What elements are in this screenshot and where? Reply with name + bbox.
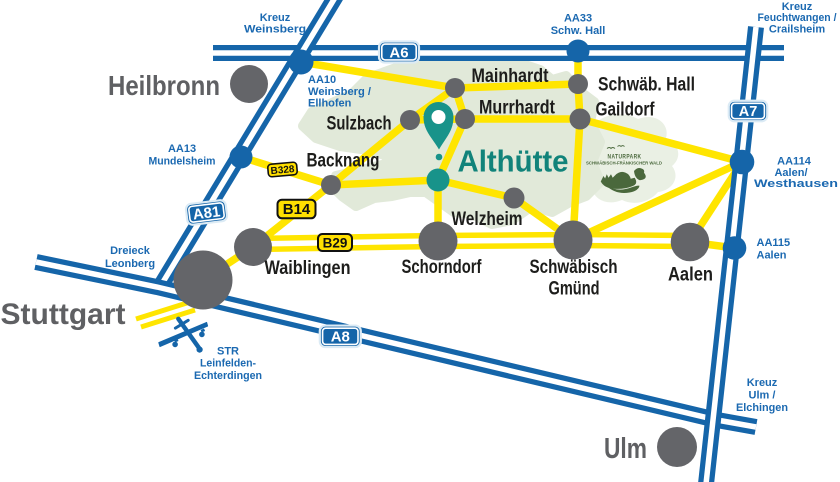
svg-text:Stuttgart: Stuttgart [1,298,126,331]
svg-text:Ulm /: Ulm / [749,390,776,402]
svg-text:Aalen: Aalen [757,250,787,262]
svg-text:Aalen: Aalen [668,265,713,286]
svg-text:Dreieck: Dreieck [110,245,151,257]
svg-text:A7: A7 [739,104,758,120]
svg-text:Weinsberg: Weinsberg [244,24,306,36]
svg-text:AA13: AA13 [168,143,196,155]
svg-text:Mundelsheim: Mundelsheim [149,156,216,168]
svg-text:AA115: AA115 [757,237,791,249]
svg-text:Weinsberg /: Weinsberg / [308,86,371,98]
svg-text:Westhausen: Westhausen [754,178,838,190]
svg-text:Gmünd: Gmünd [549,279,600,300]
svg-text:A8: A8 [331,329,350,346]
svg-text:Ulm: Ulm [604,433,647,465]
svg-text:Gaildorf: Gaildorf [596,100,656,121]
svg-text:AA114: AA114 [777,156,812,168]
svg-text:AA33: AA33 [564,13,592,25]
svg-text:Leinfelden-: Leinfelden- [200,358,256,370]
svg-text:Murrhardt: Murrhardt [479,98,556,119]
svg-text:STR: STR [217,346,239,358]
svg-text:Echterdingen: Echterdingen [194,370,262,382]
svg-text:Leonberg: Leonberg [105,258,155,270]
svg-text:Feuchtwangen /: Feuchtwangen / [758,12,837,24]
svg-text:Elchingen: Elchingen [736,402,788,414]
svg-text:Ellhofen: Ellhofen [308,98,352,110]
svg-text:B328: B328 [270,164,295,177]
svg-text:Mainhardt: Mainhardt [472,66,550,87]
svg-text:Schorndorf: Schorndorf [402,257,483,278]
svg-text:Backnang: Backnang [307,151,380,172]
svg-text:Schwäbisch: Schwäbisch [530,257,618,278]
svg-text:Waiblingen: Waiblingen [265,258,351,279]
svg-text:AA10: AA10 [308,74,336,86]
svg-text:Sulzbach: Sulzbach [327,114,392,135]
svg-text:B29: B29 [323,235,348,250]
svg-text:Heilbronn: Heilbronn [108,70,220,101]
svg-text:A81: A81 [192,203,221,223]
svg-text:B14: B14 [283,201,311,218]
svg-text:A6: A6 [389,44,408,61]
svg-text:Welzheim: Welzheim [452,209,523,230]
svg-text:SCHWÄBISCH-FRÄNKISCHER WALD: SCHWÄBISCH-FRÄNKISCHER WALD [586,160,663,166]
svg-text:Althütte: Althütte [458,145,569,179]
svg-text:Schwäb. Hall: Schwäb. Hall [598,75,695,96]
svg-text:Kreuz: Kreuz [747,377,778,389]
svg-text:Schw. Hall: Schw. Hall [551,25,606,37]
svg-text:Crailsheim: Crailsheim [769,24,825,36]
svg-text:Kreuz: Kreuz [260,12,291,24]
